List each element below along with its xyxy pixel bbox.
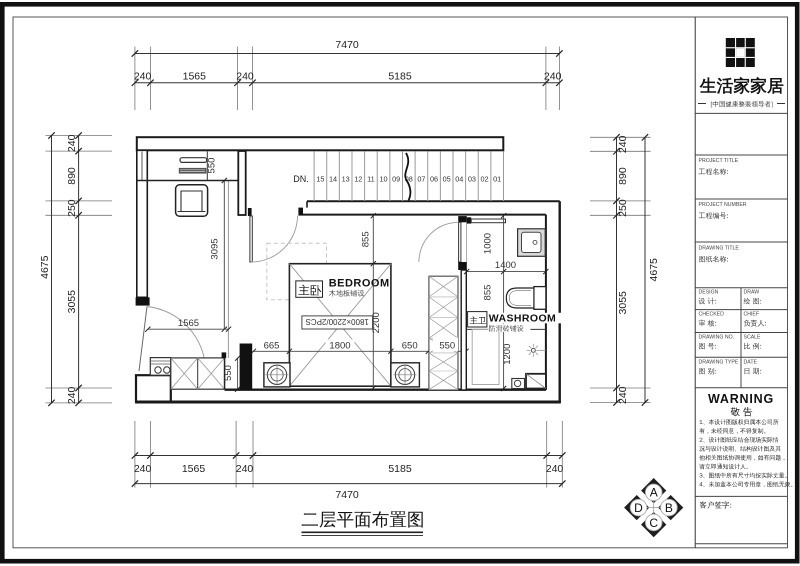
svg-text:DRAWING TITLE: DRAWING TITLE bbox=[699, 246, 740, 252]
svg-text:CHIEF: CHIEF bbox=[744, 312, 760, 318]
svg-text:02: 02 bbox=[481, 174, 489, 183]
svg-text:240: 240 bbox=[617, 135, 629, 153]
svg-text:DESIGN: DESIGN bbox=[699, 290, 719, 296]
svg-text:2200: 2200 bbox=[371, 312, 382, 333]
svg-text:10: 10 bbox=[379, 174, 387, 183]
svg-text:240: 240 bbox=[66, 134, 78, 152]
svg-text:240: 240 bbox=[134, 463, 152, 475]
svg-text:DRAWING NO.: DRAWING NO. bbox=[699, 335, 735, 341]
svg-text:240: 240 bbox=[617, 386, 629, 404]
svg-text:240: 240 bbox=[134, 71, 152, 83]
svg-text:SCALE: SCALE bbox=[744, 335, 762, 341]
svg-text:03: 03 bbox=[468, 174, 476, 183]
svg-text:WARNING: WARNING bbox=[708, 392, 774, 406]
svg-text:890: 890 bbox=[66, 167, 78, 185]
svg-text:1565: 1565 bbox=[183, 71, 207, 83]
svg-text:14: 14 bbox=[329, 174, 337, 183]
svg-text:240: 240 bbox=[236, 71, 254, 83]
svg-text:240: 240 bbox=[236, 463, 254, 475]
svg-text:665: 665 bbox=[264, 340, 280, 351]
svg-text:07: 07 bbox=[417, 174, 425, 183]
svg-text:5185: 5185 bbox=[388, 463, 412, 475]
svg-text:3055: 3055 bbox=[66, 290, 78, 314]
svg-text:855: 855 bbox=[360, 231, 371, 247]
svg-text:7470: 7470 bbox=[335, 39, 359, 51]
svg-text:1000: 1000 bbox=[483, 233, 494, 254]
svg-text:WASHROOM: WASHROOM bbox=[489, 313, 556, 325]
svg-text:06: 06 bbox=[430, 174, 438, 183]
svg-text:A: A bbox=[650, 486, 658, 500]
svg-text:650: 650 bbox=[402, 340, 418, 351]
svg-text:C: C bbox=[649, 516, 658, 530]
svg-text:D: D bbox=[634, 501, 643, 515]
svg-text:11: 11 bbox=[367, 174, 375, 183]
svg-text:4675: 4675 bbox=[39, 255, 51, 279]
svg-text:05: 05 bbox=[443, 174, 451, 183]
svg-text:DRAWING TYPE: DRAWING TYPE bbox=[699, 360, 739, 366]
svg-text:3055: 3055 bbox=[617, 291, 629, 315]
svg-text:3095: 3095 bbox=[210, 238, 221, 259]
svg-text:13: 13 bbox=[342, 174, 350, 183]
svg-text:09: 09 bbox=[392, 174, 400, 183]
svg-text:1800×2200/2PCS: 1800×2200/2PCS bbox=[306, 317, 369, 326]
svg-text:PROJECT TITLE: PROJECT TITLE bbox=[699, 158, 739, 164]
svg-text:5185: 5185 bbox=[388, 71, 412, 83]
svg-text:240: 240 bbox=[66, 386, 78, 404]
svg-text:1800: 1800 bbox=[329, 340, 350, 351]
svg-text:550: 550 bbox=[439, 340, 455, 351]
svg-text:DRAW: DRAW bbox=[744, 290, 760, 296]
svg-text:1565: 1565 bbox=[178, 318, 199, 329]
svg-text:15: 15 bbox=[316, 174, 324, 183]
svg-text:PROJECT NUMBER: PROJECT NUMBER bbox=[699, 202, 747, 208]
svg-text:855: 855 bbox=[483, 285, 494, 301]
svg-text:890: 890 bbox=[617, 167, 629, 185]
svg-text:1565: 1565 bbox=[182, 463, 206, 475]
svg-text:DATE: DATE bbox=[744, 360, 758, 366]
svg-text:240: 240 bbox=[546, 463, 564, 475]
svg-text:1200: 1200 bbox=[502, 344, 513, 365]
svg-text:1400: 1400 bbox=[495, 260, 516, 271]
svg-text:240: 240 bbox=[544, 71, 562, 83]
svg-text:7470: 7470 bbox=[335, 489, 359, 501]
svg-text:BEDROOM: BEDROOM bbox=[329, 278, 390, 290]
svg-text:01: 01 bbox=[493, 174, 501, 183]
svg-text:12: 12 bbox=[354, 174, 362, 183]
svg-text:4675: 4675 bbox=[648, 258, 660, 282]
svg-text:CHECKED: CHECKED bbox=[699, 312, 725, 318]
svg-text:250: 250 bbox=[66, 199, 78, 217]
svg-text:B: B bbox=[665, 501, 673, 515]
svg-text:250: 250 bbox=[617, 199, 629, 217]
svg-text:550: 550 bbox=[207, 158, 218, 174]
svg-text:DN.: DN. bbox=[293, 174, 309, 184]
svg-text:04: 04 bbox=[455, 174, 463, 183]
svg-text:550: 550 bbox=[223, 365, 234, 381]
